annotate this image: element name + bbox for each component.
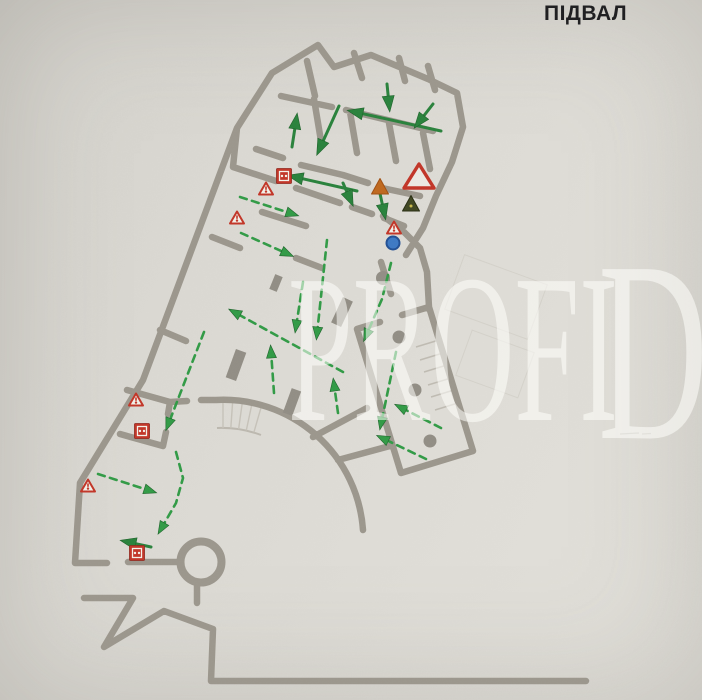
evacuation-plan-photo: ПІДВАЛ — [0, 0, 702, 700]
floor-plan-svg: PROFI D — [0, 0, 702, 700]
watermark-text-main: PROFI — [288, 231, 618, 466]
watermark-text-cap: D — [598, 208, 702, 494]
